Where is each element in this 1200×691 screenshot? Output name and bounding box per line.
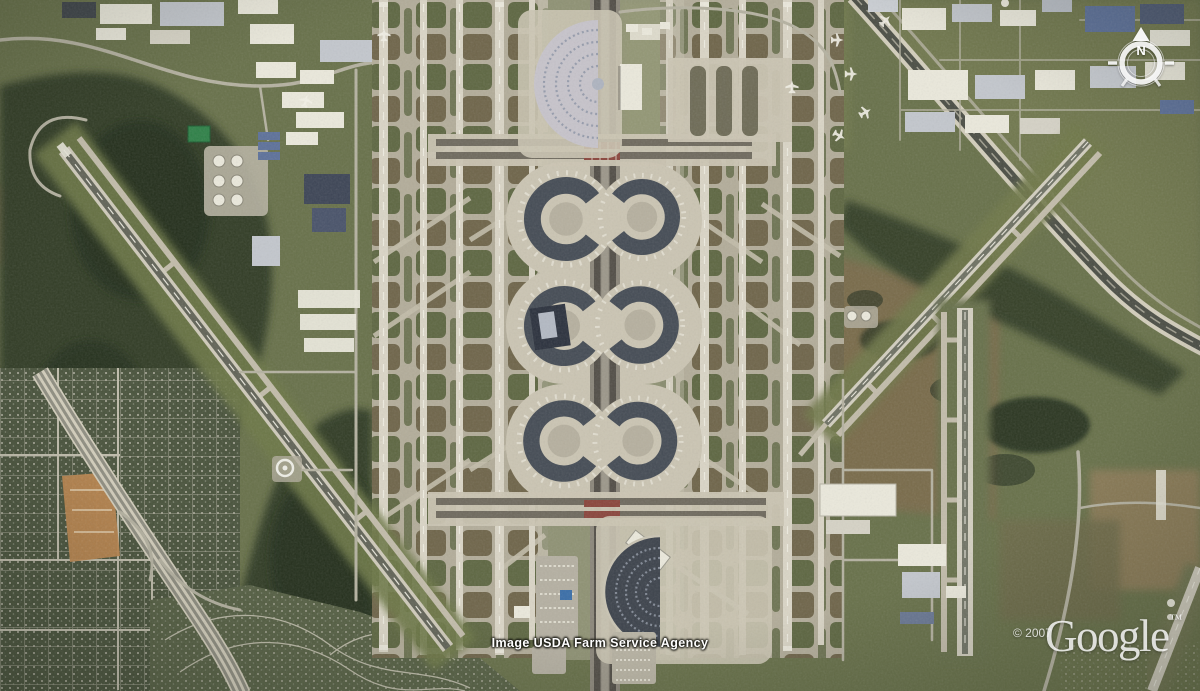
satellite-imagery (0, 0, 1200, 691)
vignette (0, 0, 1200, 691)
trademark-symbol: ™ (1169, 611, 1182, 626)
satellite-map-viewport[interactable]: Image USDA Farm Service Agency © 2007 Go… (0, 0, 1200, 691)
imagery-attribution-label: Image USDA Farm Service Agency (492, 637, 709, 650)
google-logo-text: Google (1045, 611, 1168, 661)
google-watermark: Google™ (1045, 612, 1182, 659)
compass-north-label: N (1136, 43, 1145, 58)
compass-rose-icon[interactable]: N (1107, 20, 1175, 94)
